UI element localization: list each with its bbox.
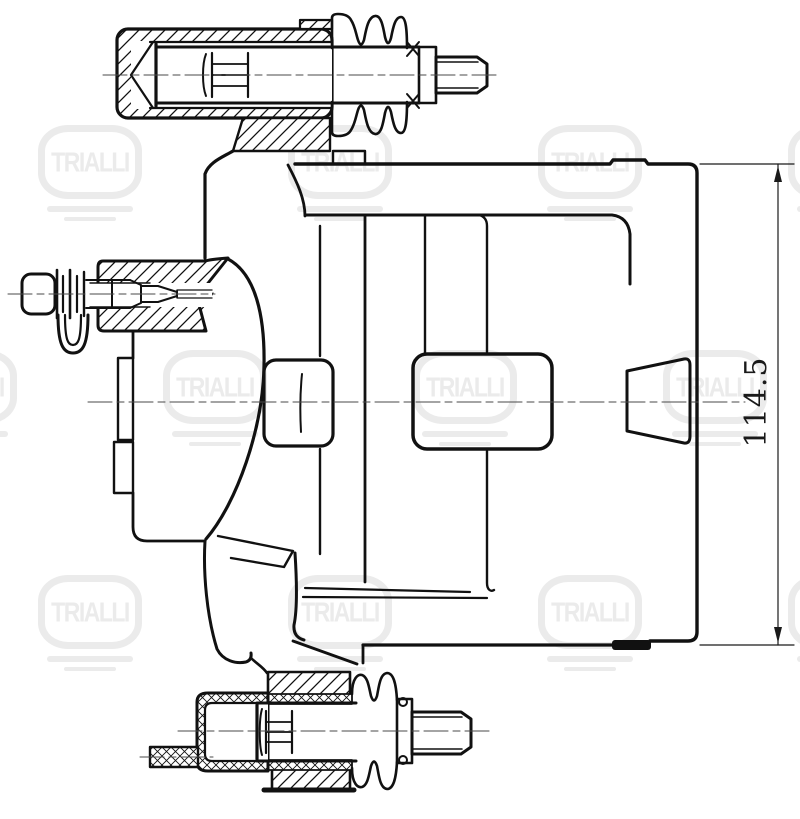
brake-caliper-section-drawing: 114.5 [0,0,800,819]
pad-plate-upper-lug [118,358,133,440]
lower-guide-pin-assembly [140,672,490,790]
arrow-down-icon [774,627,782,643]
hex-socket [266,722,292,742]
pad-plate-lower-lug [114,442,133,493]
technical-drawing-page: TRIALLITRIALLITRIALLITRIALLITRIALLITRIAL… [0,0,800,819]
caliper-finger-curve [206,259,264,539]
upper-boot-bellows [332,14,407,48]
bleeder-cap-strap [58,315,88,353]
pad-wedge [627,359,690,443]
threaded-stud [412,712,471,754]
arrow-up-icon [774,166,782,182]
lower-boot-bellows [352,673,397,701]
piston-button [264,360,333,446]
caliper-body [114,151,697,673]
upper-guide-pin-assembly [103,14,500,151]
body-outline-left [205,151,233,258]
dimension-value: 114.5 [739,357,774,448]
upper-bracket-arm [233,118,330,151]
bleed-screw-assembly [8,258,228,353]
body-outline-right [295,160,697,641]
caliper-windows [88,354,745,449]
cylinder-top-line [305,215,630,284]
dimension-annotation: 114.5 [700,164,794,645]
